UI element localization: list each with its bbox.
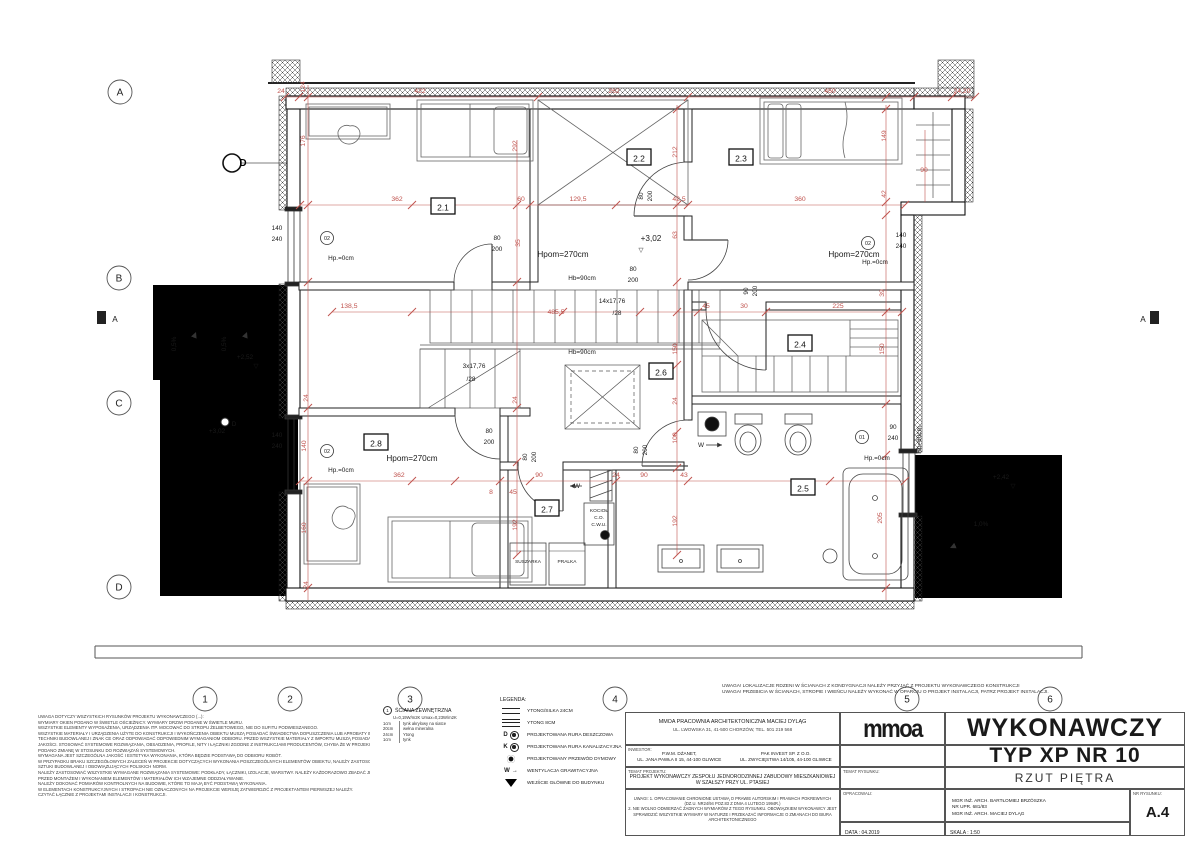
- plan-annotation: 422: [414, 88, 426, 95]
- plan-annotation: 140: [301, 440, 308, 452]
- opening-marker-label: 01: [859, 435, 865, 441]
- plan-annotation: Hb=80cm: [916, 426, 923, 454]
- empty-cell: [840, 745, 945, 767]
- plan-annotation: 90: [743, 287, 750, 295]
- grid-label: B: [116, 274, 123, 285]
- grid-label: A: [117, 88, 124, 99]
- wall-spec: 1 ŚCIANA ZEWNĘTRZNA U=0,19W/m2K Umax=0,2…: [383, 706, 501, 743]
- plan-annotation: 225: [832, 303, 844, 310]
- washbasin: [658, 545, 704, 572]
- plan-annotation: 1,0%: [974, 521, 989, 528]
- plan-annotation: C.O.: [594, 515, 604, 521]
- plan-annotation: 24: [672, 397, 679, 405]
- walls-exterior: [279, 88, 973, 609]
- plan-annotation: 138,5: [340, 303, 357, 310]
- wall-spec-title: ŚCIANA ZEWNĘTRZNA: [395, 708, 452, 714]
- plan-annotation: W: [698, 442, 705, 449]
- inwestor-cell: INWESTOR: P.W.M. DŻANET,UL. JANA PAWŁA I…: [625, 745, 840, 767]
- plan-annotation: ▽: [254, 363, 259, 370]
- mmoa-logo: mmoa: [863, 714, 922, 744]
- plan-annotation: 24: [303, 394, 310, 402]
- plan-annotation: 8: [489, 489, 493, 496]
- opening-marker-label: 02: [324, 449, 330, 455]
- title-wykonawczy: WYKONAWCZY: [945, 712, 1185, 745]
- plan-annotation: 200: [531, 451, 538, 462]
- floor-drain: [823, 549, 837, 563]
- plan-annotation: 90: [920, 167, 928, 174]
- room-number: 2.3: [735, 154, 747, 164]
- dimension-ticks: [281, 93, 979, 592]
- plan-annotation: 100: [672, 432, 679, 444]
- plan-annotation: 80: [633, 446, 640, 454]
- room-number: 2.6: [655, 368, 667, 378]
- wall-layer-row: 1cmtynk: [383, 737, 501, 742]
- grid-label: 6: [1047, 695, 1053, 706]
- inwestor-label: INWESTOR:: [628, 747, 652, 752]
- plan-annotation: 42,5: [672, 196, 685, 203]
- plan-annotation: 360: [794, 196, 806, 203]
- plan-annotation: 3x17,76: [463, 363, 486, 370]
- plan-annotation: 150: [672, 343, 679, 355]
- plan-annotation: Hpom=270cm: [828, 250, 879, 259]
- walls-interior: [299, 109, 914, 588]
- plan-annotation: 140: [272, 225, 283, 232]
- note-line: JAKOŚCI. STOSOWAĆ SYSTEMOWE ROZWIĄZANIA,…: [38, 742, 370, 748]
- legend-item: WEJŚCIE GŁÓWNE DO BUDYNKU: [500, 777, 640, 789]
- plan-annotation: 80: [493, 235, 501, 242]
- opening-marker-label: 02: [865, 241, 871, 247]
- toilet: [735, 414, 762, 455]
- legend: LEGENDA: YTONG/SILKA 24CMYTONG 8CMDPROJE…: [500, 697, 640, 789]
- legend-item-label: PROJEKTOWANA RURA DESZCZOWA: [527, 733, 613, 738]
- general-notes: UWAGA DOTYCZY WSZYSTKICH RYSUNKÓW PROJEK…: [38, 714, 370, 798]
- plan-annotation: 90: [889, 424, 897, 431]
- legend-item: W→WENTYLACJA GRAWITACYJNA: [500, 765, 640, 777]
- plan-annotation: ▽: [639, 247, 644, 254]
- plan-annotation: SUSZARKA: [515, 559, 542, 565]
- plan-annotation: KOCIOŁ: [590, 508, 608, 514]
- plan-annotation: 149: [881, 130, 888, 142]
- legend-item-label: WEJŚCIE GŁÓWNE DO BUDYNKU: [527, 781, 604, 786]
- plan-annotation: 124: [300, 81, 307, 93]
- plan-annotation: Hp.=0cm: [864, 455, 890, 462]
- office-name: MMOA PRACOWNIA ARCHITEKTONICZNA MACIEJ D…: [626, 719, 839, 726]
- grid-label: D: [115, 583, 122, 594]
- plan-annotation: A: [1140, 315, 1146, 324]
- plan-annotation: 43: [680, 472, 688, 479]
- plan-annotation: 485,5: [547, 309, 564, 316]
- wejscie-icon: [500, 779, 522, 787]
- plan-annotation: Hb=90cm: [568, 349, 596, 356]
- washbasin-2: [717, 545, 763, 572]
- uwagi-cell: UWAGI: 1. OPRACOWANIE CHRONIONE USTAWĄ O…: [625, 789, 840, 836]
- plan-annotation: 24: [612, 472, 620, 479]
- architectural-sheet: 2442226245024,2036260129,542,536090138,5…: [0, 0, 1191, 842]
- plan-annotation: 292: [512, 140, 519, 152]
- temat-projektu-label: TEMAT PROJEKTU:: [628, 769, 666, 775]
- grid-label: 5: [904, 695, 910, 706]
- wardrobe-alcove: [916, 112, 950, 198]
- plan-annotation: Hp.=0cm: [328, 255, 354, 262]
- ytong8-icon: [500, 719, 522, 727]
- temat-projektu-cell: TEMAT PROJEKTU: PROJEKT WYKONAWCZY ZESPO…: [625, 767, 840, 789]
- desk-2-8: [304, 484, 360, 564]
- plan-annotation: 140: [272, 432, 283, 439]
- plan-annotation: 192: [512, 519, 519, 531]
- plan-annotation: 39: [879, 289, 886, 297]
- plan-annotation: +3,02: [209, 428, 226, 435]
- plan-annotation: Hpom=270cm: [386, 454, 437, 463]
- plan-annotation: Hp.=0cm: [328, 467, 354, 474]
- uwagi-line: ARCHITEKTONICZNEGO: [626, 817, 839, 822]
- plan-annotation: 362: [391, 196, 403, 203]
- room-number: 2.8: [370, 439, 382, 449]
- plan-annotation: 45: [509, 489, 517, 496]
- plan-annotation: 240: [272, 236, 283, 243]
- plan-annotation: 35: [515, 239, 522, 247]
- grid-label: 2: [287, 695, 293, 706]
- plan-annotation: ▽: [1011, 483, 1016, 490]
- legend-title: LEGENDA:: [500, 697, 640, 703]
- chimney-box: [698, 412, 726, 445]
- grid-label: 1: [202, 695, 208, 706]
- plan-annotation: D: [239, 158, 246, 169]
- uwagi-line: 2. NIE WOLNO ODMIERZAĆ ŻADNYCH WYMIARÓW …: [626, 806, 839, 811]
- ytong24-icon: [500, 708, 522, 714]
- plan-annotation: 90: [535, 472, 543, 479]
- plan-annotation: C.W.U.: [591, 522, 606, 528]
- legend-item: YTONG 8CM: [500, 717, 640, 729]
- plan-annotation: 205: [877, 512, 884, 524]
- closet-2-2: [538, 100, 688, 205]
- inwestor-2: PAK INVEST SP. Z O.O.UL. ZWYCIĘSTWA 14/1…: [733, 746, 840, 766]
- room-number: 2.4: [794, 340, 806, 350]
- plan-annotation: 90: [640, 472, 648, 479]
- plan-annotation: +2,42: [993, 474, 1010, 481]
- plan-annotation: 200: [492, 246, 503, 253]
- grid-label: 3: [407, 695, 413, 706]
- plan-annotation: +2,52: [237, 354, 254, 361]
- drawing-number: A.4: [1131, 804, 1184, 821]
- remarks: UWAGA! LOKALIZACJE RDZENI W ŚCIANACH Z K…: [722, 684, 1082, 696]
- bathtub: [843, 468, 908, 580]
- legend-item: YTONG/SILKA 24CM: [500, 705, 640, 717]
- office-address: UL. LWOWSKA 31, 41-500 CHORZÓW, TEL. 501…: [626, 726, 839, 733]
- wall-spec-symbol: 1: [383, 706, 392, 715]
- plan-annotation: A: [112, 315, 118, 324]
- plan-annotation: 30: [740, 303, 748, 310]
- plan-annotation: 176: [300, 135, 307, 147]
- note-line: CZYTAĆ ŁĄCZNIE Z PROJEKTAMI INSTALACJI I…: [38, 792, 370, 798]
- office-info: MMOA PRACOWNIA ARCHITEKTONICZNA MACIEJ D…: [625, 712, 840, 745]
- wardrobe-2-4: [702, 320, 898, 392]
- plan-annotation: Hb=90cm: [568, 275, 596, 282]
- room-number: 2.2: [633, 154, 645, 164]
- room-number: 2.1: [437, 203, 449, 213]
- title-block: MMOA PRACOWNIA ARCHITEKTONICZNA MACIEJ D…: [625, 712, 1185, 836]
- dym-icon: [500, 755, 522, 763]
- data-cell: DATA : 04.2019: [840, 822, 945, 836]
- opracowali-label-cell: OPRACOWALI:: [840, 789, 945, 822]
- logo-cell: mmoa: [840, 712, 945, 745]
- rura-d-icon: D: [500, 731, 522, 740]
- plan-annotation: 129,5: [569, 196, 586, 203]
- temat-rysunku-label-cell: TEMAT RYSUNKU:: [840, 767, 945, 789]
- legend-item-label: YTONG 8CM: [527, 721, 555, 726]
- plan-annotation: 450: [824, 88, 836, 95]
- plan-annotation: 200: [628, 277, 639, 284]
- plan-annotation: 200: [642, 444, 649, 455]
- plan-annotation: 0,5%: [221, 336, 228, 351]
- bidet: [785, 414, 812, 455]
- rura-k-icon: K: [500, 743, 522, 752]
- plan-annotation: 14x17,76: [599, 298, 626, 305]
- note-line: NALEŻY ZASTOSOWAĆ WSZYSTKIE WYMAGANE ROZ…: [38, 770, 370, 776]
- author-line: MGR INŻ. ARCH. MACIEJ DYLĄG: [952, 811, 1129, 817]
- stairs: [420, 290, 720, 429]
- legend-item-label: YTONG/SILKA 24CM: [527, 709, 573, 714]
- plan-annotation: 24: [512, 396, 519, 404]
- legend-item: KPROJEKTOWANA RURA KANALIZACYJNA: [500, 741, 640, 753]
- plan-annotation: 42: [881, 190, 888, 198]
- chair-2-1: [338, 125, 360, 144]
- legend-item: DPROJEKTOWANA RURA DESZCZOWA: [500, 729, 640, 741]
- plan-annotation: D: [232, 421, 237, 428]
- legend-item: PROJEKTOWANY PRZEWÓD DYMOWY: [500, 753, 640, 765]
- plan-annotation: 24: [277, 88, 285, 95]
- plan-annotation: +3,02: [641, 234, 662, 243]
- plan-annotation: Hpom=270cm: [537, 250, 588, 259]
- plan-annotation: 200: [752, 285, 759, 296]
- legend-item-label: WENTYLACJA GRAWITACYJNA: [527, 769, 598, 774]
- plan-annotation: /28: [467, 376, 476, 383]
- plan-annotation: 200: [647, 190, 654, 201]
- opening-marker-label: 02: [324, 236, 330, 242]
- plan-annotation: 24: [303, 581, 310, 589]
- legend-item-label: PROJEKTOWANY PRZEWÓD DYMOWY: [527, 757, 616, 762]
- plan-annotation: 0,5%: [171, 336, 178, 351]
- plan-annotation: 240: [888, 435, 899, 442]
- legend-item-label: PROJEKTOWANA RURA KANALIZACYJNA: [527, 745, 622, 750]
- plan-annotation: 262: [608, 88, 620, 95]
- title-typ: TYP XP NR 10: [945, 745, 1185, 767]
- plan-annotation: 24,20: [953, 88, 970, 95]
- grid-label: C: [115, 399, 122, 410]
- nr-rysunku-cell: NR RYSUNKU: A.4: [1130, 789, 1185, 836]
- plan-annotation: 200: [484, 439, 495, 446]
- plan-annotation: 362: [393, 472, 405, 479]
- skala-cell: SKALA : 1:50: [945, 822, 1130, 836]
- temat-rysunku-cell: RZUT PIĘTRA: [945, 767, 1185, 789]
- plan-annotation: 80: [522, 453, 529, 461]
- plan-annotation: 45: [702, 303, 710, 310]
- chair-2-8: [332, 506, 355, 529]
- plan-annotation: PRALKA: [558, 559, 578, 565]
- room-number: 2.7: [541, 505, 553, 515]
- plan-annotation: 63: [672, 231, 679, 239]
- plan-annotation: 192: [672, 515, 679, 527]
- plan-annotation: W: [574, 483, 581, 490]
- plan-annotation: 80: [485, 428, 493, 435]
- room-number: 2.5: [797, 484, 809, 494]
- plan-annotation: 240: [272, 443, 283, 450]
- plan-annotation: 212: [672, 146, 679, 158]
- furniture: [304, 98, 950, 582]
- plan-annotation: 140: [896, 232, 907, 239]
- went-icon: W→: [500, 768, 522, 774]
- plan-annotation: 80: [629, 266, 637, 273]
- plan-annotation: Hp.=0cm: [862, 259, 888, 266]
- plan-annotation: 60: [517, 196, 525, 203]
- plan-annotation: 80: [638, 192, 645, 200]
- plan-annotation: 240: [896, 243, 907, 250]
- remark-line: UWAGA! PRZEBICIA W ŚCIANACH, STROPIE I W…: [722, 690, 1082, 696]
- opracowali-names-cell: MGR INŻ. ARCH. BARTŁOMIEJ BRZÓSZKANR UPR…: [945, 789, 1130, 822]
- plan-annotation: 160: [301, 522, 308, 534]
- plan-annotation: 150: [879, 343, 886, 355]
- plan-annotation: /28: [613, 310, 622, 317]
